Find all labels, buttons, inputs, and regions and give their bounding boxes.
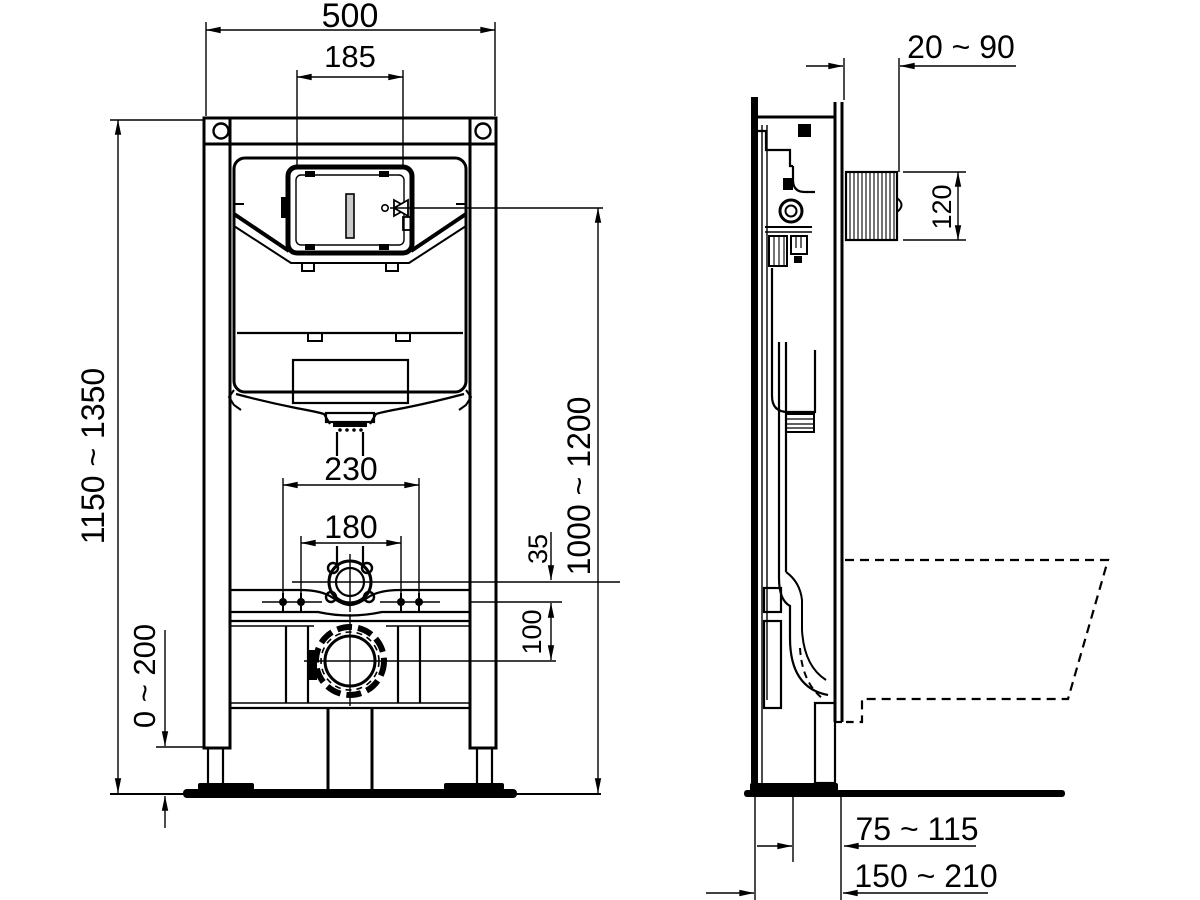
inlet-valve-core <box>786 206 797 217</box>
dim-label-35: 35 <box>523 534 553 564</box>
flange-dots <box>338 428 363 432</box>
hanger-hole-right <box>476 124 491 139</box>
wc-pan-outline <box>845 560 1108 722</box>
spud-threads <box>786 414 814 432</box>
pan-bolt-markers <box>262 593 562 611</box>
flush-flange <box>326 413 374 422</box>
flush-center-point <box>382 205 388 211</box>
flush-window <box>234 167 466 271</box>
dim-label-185: 185 <box>324 39 376 74</box>
flush-slot <box>346 194 354 238</box>
seam-tab-left <box>308 333 322 341</box>
wc-frame-drawing: 500 185 1150 ~ 1350 0 ~ 200 <box>0 0 1200 900</box>
foot-pad-left <box>198 783 254 790</box>
funnel-right <box>370 394 464 424</box>
hanger-hole-left <box>214 124 229 139</box>
shroud-foot-left <box>302 263 314 271</box>
top-rail <box>204 118 496 144</box>
valve-block <box>783 178 793 190</box>
gasket-hatch <box>769 236 787 266</box>
window-lug-bl <box>305 244 315 250</box>
dim-label-180: 180 <box>324 509 377 545</box>
foot-pad-right <box>444 783 504 790</box>
access-box <box>846 172 902 240</box>
bracket-elbow <box>793 166 815 192</box>
upright-left <box>204 118 230 748</box>
front-view: 500 185 1150 ~ 1350 0 ~ 200 <box>75 0 620 828</box>
dim-bolt-inner: 180 <box>301 509 401 610</box>
access-box-hatch <box>850 172 894 240</box>
dim-label-1150-1350: 1150 ~ 1350 <box>75 368 111 544</box>
dim-label-1000-1200: 1000 ~ 1200 <box>561 397 597 576</box>
dim-flush-window-width: 185 <box>297 39 403 165</box>
dim-outlet-to-front: 75 ~ 115 <box>757 797 979 862</box>
dim-label-0-200: 0 ~ 200 <box>127 624 162 728</box>
dim-label-150-210: 150 ~ 210 <box>854 858 997 894</box>
leg-right <box>477 748 492 786</box>
dim-outlet-offset-100: 100 <box>517 603 551 660</box>
leg-left <box>208 748 223 786</box>
seam-tab-right <box>396 333 410 341</box>
shroud-foot-right <box>386 263 398 271</box>
flush-flange-dark <box>333 422 367 427</box>
dim-label-230: 230 <box>324 451 377 487</box>
outlet-clip <box>308 650 317 680</box>
bracket-block <box>798 124 811 137</box>
cistern-recess <box>293 360 408 403</box>
funnel-left <box>236 394 330 424</box>
cistern-body <box>234 158 466 392</box>
clamp-bracket <box>791 236 807 263</box>
dim-box-height: 120 <box>903 172 966 240</box>
bracket-steps <box>758 131 793 166</box>
back-rail <box>751 97 758 783</box>
dim-label-20-90: 20 ~ 90 <box>907 29 1015 65</box>
drain-bend-inner <box>786 572 826 680</box>
technical-drawing-canvas: 500 185 1150 ~ 1350 0 ~ 200 <box>0 0 1200 900</box>
window-hinge <box>281 197 289 218</box>
side-frame <box>744 97 1065 797</box>
window-lug-tr <box>379 171 389 177</box>
inlet-valve-side <box>780 200 802 222</box>
dim-wall-finish: 20 ~ 90 <box>806 29 1016 172</box>
lower-rail <box>230 614 556 708</box>
floor-line-side <box>744 790 1065 797</box>
window-lug-tl <box>305 171 315 177</box>
dim-label-120: 120 <box>927 184 957 229</box>
dim-inlet-offset-35: 35 <box>523 532 553 580</box>
dim-label-500: 500 <box>322 0 379 35</box>
side-leg <box>815 703 835 783</box>
side-view: 20 ~ 90 120 75 ~ 115 150 ~ 210 <box>706 29 1108 900</box>
dim-label-75-115: 75 ~ 115 <box>855 811 978 847</box>
dim-label-100: 100 <box>517 609 547 654</box>
base-plate <box>183 789 517 798</box>
upright-right <box>470 118 496 748</box>
window-lug-br <box>379 244 389 250</box>
